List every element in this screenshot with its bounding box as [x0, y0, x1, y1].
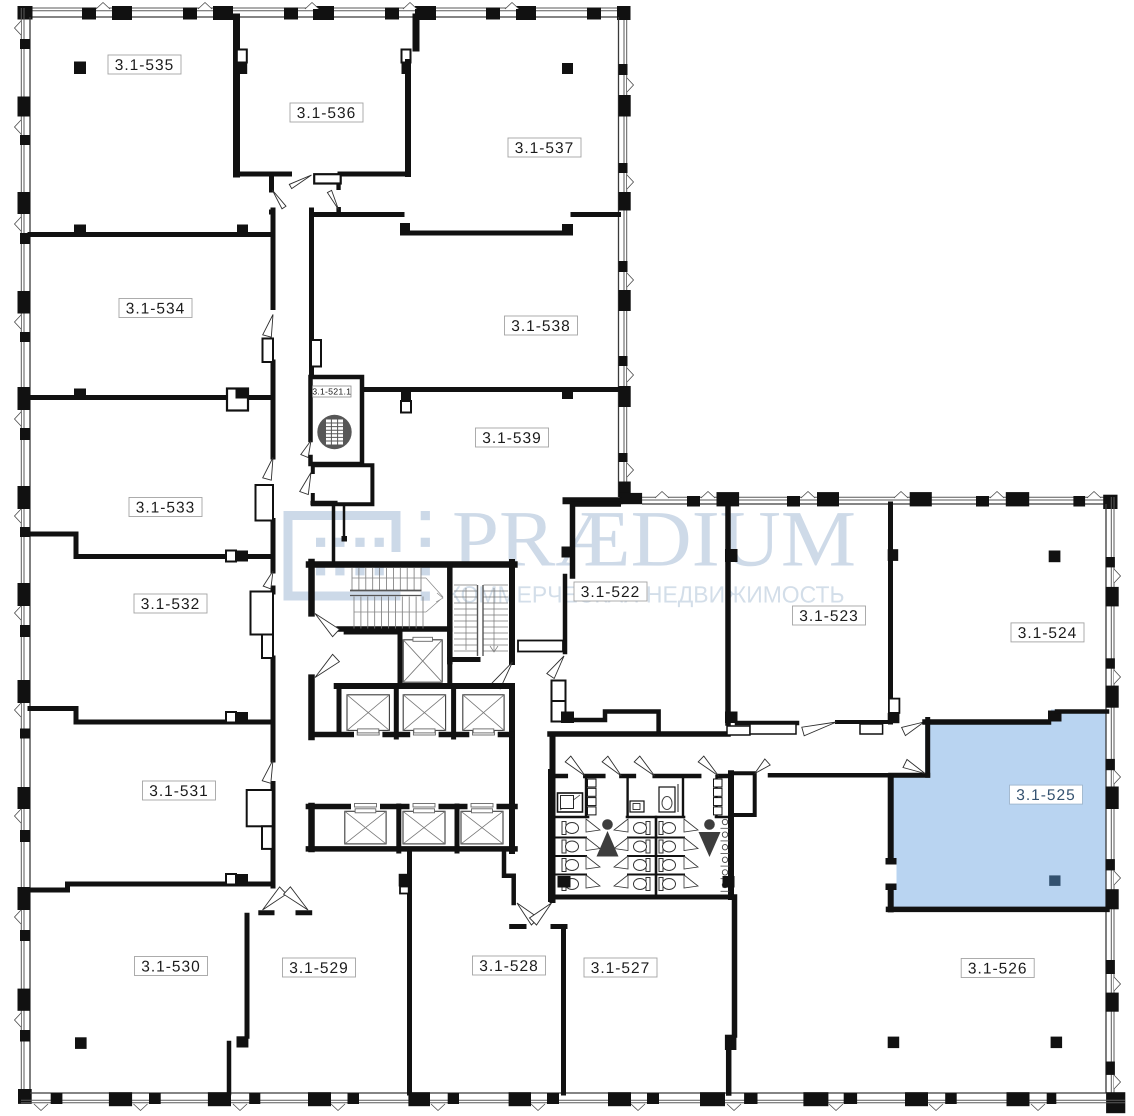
svg-text:3.1-532: 3.1-532 [141, 596, 201, 613]
svg-text:3.1-527: 3.1-527 [591, 960, 651, 977]
svg-text:3.1-522: 3.1-522 [581, 584, 641, 601]
svg-text:3.1-526: 3.1-526 [968, 961, 1028, 978]
svg-text:3.1-523: 3.1-523 [799, 608, 859, 625]
svg-text:3.1-538: 3.1-538 [511, 318, 571, 335]
svg-text:3.1-533: 3.1-533 [136, 500, 196, 517]
svg-text:3.1-528: 3.1-528 [479, 958, 539, 975]
svg-text:3.1-534: 3.1-534 [126, 301, 186, 318]
svg-text:3.1-531: 3.1-531 [149, 783, 209, 800]
svg-text:3.1-535: 3.1-535 [115, 57, 175, 74]
svg-text:3.1-524: 3.1-524 [1018, 625, 1078, 642]
svg-text:3.1-529: 3.1-529 [289, 960, 349, 977]
svg-text:3.1-537: 3.1-537 [515, 140, 575, 157]
svg-text:3.1-530: 3.1-530 [141, 959, 201, 976]
svg-text:3.1-521.1: 3.1-521.1 [312, 387, 351, 397]
svg-text:3.1-525: 3.1-525 [1016, 787, 1076, 804]
svg-text:3.1-536: 3.1-536 [297, 105, 357, 122]
svg-text:3.1-539: 3.1-539 [482, 430, 542, 447]
